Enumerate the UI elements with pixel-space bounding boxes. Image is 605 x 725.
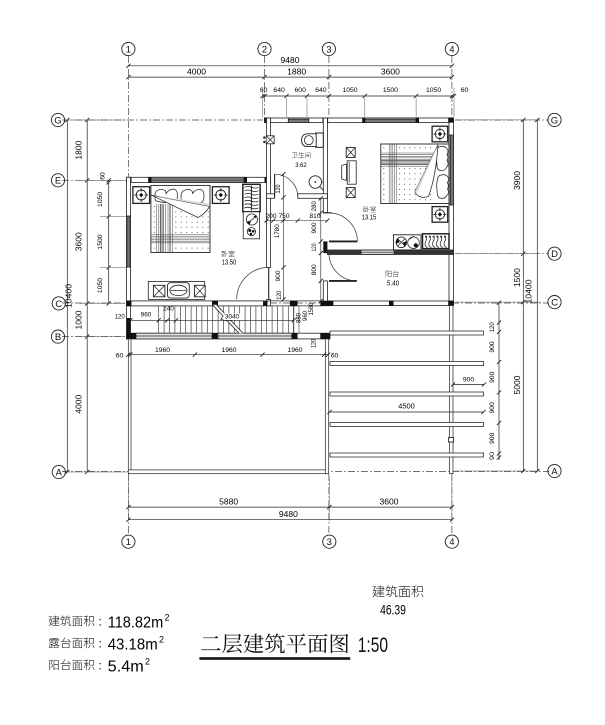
- svg-text:1500: 1500: [513, 268, 522, 288]
- svg-text:118.82m: 118.82m: [108, 615, 164, 632]
- svg-text:2: 2: [262, 44, 267, 55]
- svg-text:G: G: [54, 115, 61, 126]
- svg-text:A: A: [551, 466, 558, 477]
- svg-text:1960: 1960: [221, 347, 236, 354]
- svg-text:120: 120: [275, 184, 282, 193]
- svg-text:200: 200: [266, 213, 277, 220]
- svg-text:1800: 1800: [75, 140, 84, 160]
- svg-text:9480: 9480: [281, 56, 301, 65]
- svg-text:960: 960: [141, 312, 152, 319]
- svg-text::: :: [99, 636, 102, 650]
- svg-text:1960: 1960: [287, 347, 302, 354]
- svg-text::: :: [99, 614, 102, 628]
- svg-text:1580: 1580: [308, 302, 315, 316]
- svg-text:640: 640: [315, 87, 327, 94]
- svg-text:C: C: [551, 298, 558, 309]
- svg-text:800: 800: [311, 264, 318, 275]
- svg-text:240: 240: [163, 306, 174, 313]
- svg-text:E: E: [55, 176, 61, 187]
- svg-text:3600: 3600: [380, 497, 400, 506]
- svg-text:5000: 5000: [513, 375, 522, 395]
- svg-text:900: 900: [275, 270, 282, 281]
- svg-text:60: 60: [116, 353, 124, 360]
- svg-text:4500: 4500: [398, 402, 414, 411]
- svg-text:3: 3: [326, 44, 331, 55]
- svg-text:3600: 3600: [75, 232, 84, 252]
- svg-text:G: G: [551, 115, 558, 126]
- svg-text:C: C: [55, 299, 62, 310]
- svg-text:1050: 1050: [426, 87, 441, 94]
- svg-text:120: 120: [311, 339, 318, 348]
- svg-text:120: 120: [311, 243, 318, 251]
- svg-text:900: 900: [463, 377, 475, 384]
- svg-text:1050: 1050: [342, 87, 357, 94]
- svg-text:750: 750: [279, 213, 290, 220]
- svg-text:5.40: 5.40: [387, 281, 399, 288]
- svg-text:900: 900: [489, 371, 496, 383]
- svg-text:60: 60: [461, 87, 469, 94]
- svg-text:1: 1: [126, 537, 131, 548]
- svg-text:1780: 1780: [274, 224, 281, 238]
- svg-text:900: 900: [489, 341, 496, 353]
- svg-text:60: 60: [331, 353, 339, 360]
- svg-text:1500: 1500: [383, 87, 398, 94]
- svg-text:900: 900: [489, 402, 496, 414]
- svg-text:4: 4: [449, 537, 454, 548]
- svg-text:3040: 3040: [225, 314, 240, 321]
- svg-text:A: A: [56, 467, 63, 478]
- svg-text:600: 600: [295, 87, 307, 94]
- svg-text:900: 900: [311, 222, 318, 233]
- svg-text:900: 900: [489, 432, 496, 444]
- svg-text:5.4m: 5.4m: [108, 659, 144, 676]
- svg-text:D: D: [551, 249, 558, 260]
- svg-text:9480: 9480: [279, 510, 299, 519]
- svg-text:120: 120: [276, 290, 283, 299]
- svg-text:1880: 1880: [287, 68, 307, 77]
- svg-text:60: 60: [260, 87, 268, 94]
- svg-text:3.62: 3.62: [295, 162, 307, 169]
- svg-text:280: 280: [311, 201, 318, 212]
- svg-text:2: 2: [159, 635, 164, 645]
- svg-text:120: 120: [489, 322, 496, 332]
- svg-text:10400: 10400: [525, 279, 534, 304]
- svg-text:60: 60: [100, 172, 107, 180]
- svg-text:3600: 3600: [381, 68, 401, 77]
- svg-text:4: 4: [449, 44, 454, 55]
- svg-text:1050: 1050: [97, 278, 104, 293]
- svg-text:1: 1: [126, 44, 131, 55]
- svg-text:4000: 4000: [75, 394, 84, 414]
- svg-text:13.50: 13.50: [222, 260, 237, 267]
- svg-text::: :: [99, 658, 102, 672]
- svg-text:1500: 1500: [97, 234, 104, 249]
- svg-text:90: 90: [489, 452, 496, 460]
- svg-text:120: 120: [115, 314, 125, 321]
- svg-text:1000: 1000: [75, 310, 84, 330]
- svg-text:1960: 1960: [155, 347, 170, 354]
- svg-text:4000: 4000: [187, 68, 207, 77]
- svg-text:2: 2: [145, 657, 150, 667]
- svg-text:3: 3: [327, 537, 332, 548]
- svg-text:46.39: 46.39: [380, 601, 406, 617]
- svg-text:640: 640: [273, 87, 285, 94]
- svg-text:13.15: 13.15: [362, 215, 377, 222]
- svg-text:3900: 3900: [513, 170, 522, 190]
- svg-text:10400: 10400: [65, 283, 74, 308]
- svg-text:2: 2: [165, 613, 170, 623]
- svg-text:5880: 5880: [219, 497, 239, 506]
- svg-text:B: B: [55, 332, 61, 343]
- svg-text:1050: 1050: [97, 192, 104, 207]
- svg-text:1:50: 1:50: [358, 634, 388, 657]
- svg-text:43.18m: 43.18m: [108, 637, 158, 654]
